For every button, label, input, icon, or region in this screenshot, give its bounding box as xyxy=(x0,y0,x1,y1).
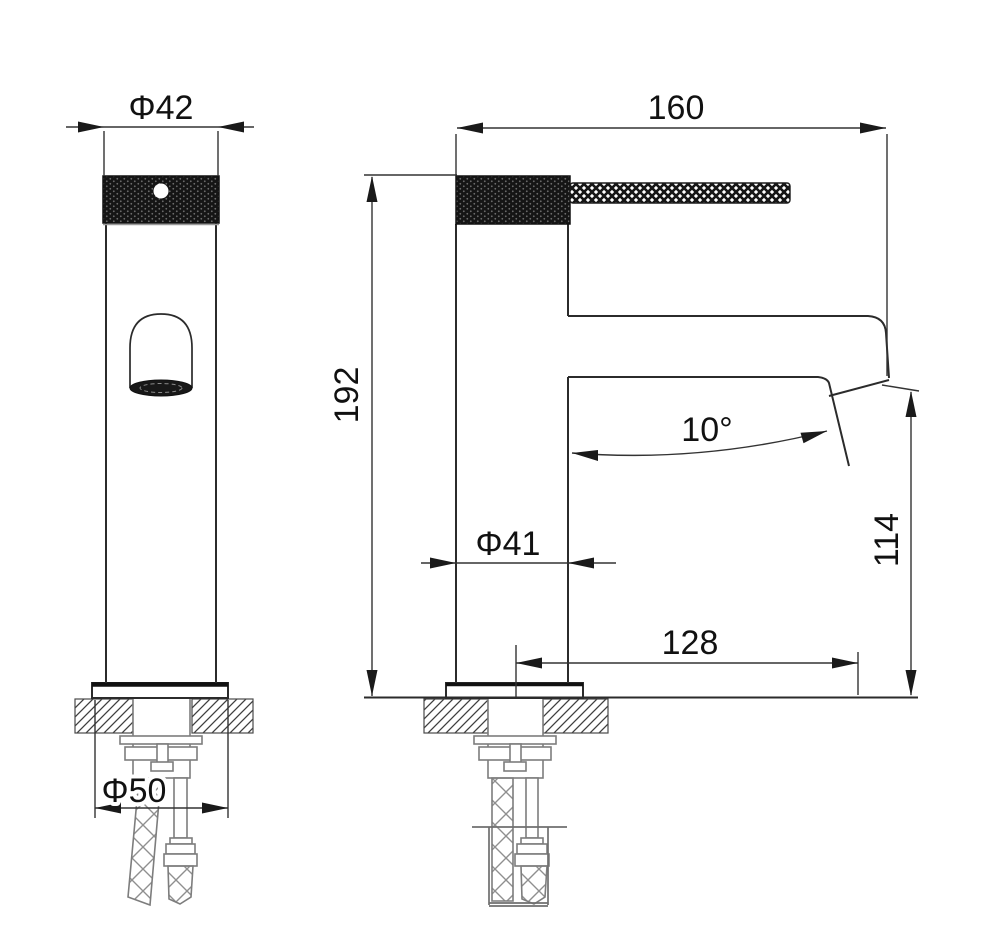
faucet-side-view xyxy=(364,176,918,698)
dim-label-outlet-height: 114 xyxy=(868,513,906,567)
dim-overall-width: 160 xyxy=(456,89,887,376)
arrowhead xyxy=(78,122,104,133)
supply-pipe-right-side xyxy=(526,778,538,838)
mounting-washer-side xyxy=(474,736,556,744)
dim-label-spout-angle: 10° xyxy=(681,411,732,449)
drawing-canvas: Φ42 160 192 Φ41 xyxy=(0,0,1000,934)
spout-window-front xyxy=(130,314,192,388)
dim-outlet-height: 114 xyxy=(868,385,919,696)
arrowhead xyxy=(367,670,378,696)
hose-fitting-front-1 xyxy=(170,838,192,844)
arrowhead xyxy=(218,122,244,133)
dim-spout-angle: 10° xyxy=(572,411,827,461)
dim-label-base-diameter: Φ50 xyxy=(102,772,167,810)
dim-body-diameter: Φ41 xyxy=(421,525,616,569)
arrowhead xyxy=(568,558,594,569)
handle-lever-side xyxy=(570,183,790,203)
spout-tip-bottom-edge xyxy=(829,380,889,396)
knurled-cap-front xyxy=(103,176,219,223)
dim-label-overall-width: 160 xyxy=(648,89,705,127)
mounting-washer-front xyxy=(120,736,202,744)
mounting-stud-side xyxy=(510,744,521,764)
hose-fitting-side-1 xyxy=(521,838,543,844)
dim-label-cap-diameter: Φ42 xyxy=(129,89,194,127)
dim-label-overall-height: 192 xyxy=(328,367,366,424)
arrowhead xyxy=(202,803,228,814)
mounting-bolt-head-front xyxy=(151,762,173,771)
hose-fitting-front-3 xyxy=(164,854,197,866)
hose-tail-front xyxy=(168,866,193,904)
supply-hose-left-side xyxy=(492,778,513,901)
dim-cap-diameter: Φ42 xyxy=(66,89,254,176)
mounting-bolt-head-side xyxy=(504,762,526,771)
hose-tail-side xyxy=(521,866,547,904)
dim-label-body-diameter: Φ41 xyxy=(476,525,541,563)
arrowhead xyxy=(832,658,858,669)
arrowhead xyxy=(457,123,483,134)
aerator-front xyxy=(130,380,192,396)
faucet-front-view xyxy=(92,176,228,698)
dim-label-spout-reach: 128 xyxy=(662,624,719,662)
spout-top-outline xyxy=(568,316,889,378)
mounting-stud-front xyxy=(157,744,168,764)
arrowhead xyxy=(430,558,456,569)
knurled-cap-side xyxy=(456,176,570,224)
cap-hole-front xyxy=(154,184,169,199)
hose-fitting-side-3 xyxy=(515,854,549,866)
arrowhead xyxy=(906,391,917,417)
arrowhead xyxy=(516,658,542,669)
dim-overall-height: 192 xyxy=(328,175,457,696)
arrowhead xyxy=(801,431,828,443)
arrowhead xyxy=(906,670,917,696)
arrowhead xyxy=(572,450,598,461)
hose-fitting-front-2 xyxy=(166,844,195,854)
hose-fitting-side-2 xyxy=(517,844,547,854)
arrowhead xyxy=(860,123,886,134)
arrowhead xyxy=(367,176,378,202)
faucet-technical-drawing: Φ42 160 192 Φ41 xyxy=(0,0,1000,934)
